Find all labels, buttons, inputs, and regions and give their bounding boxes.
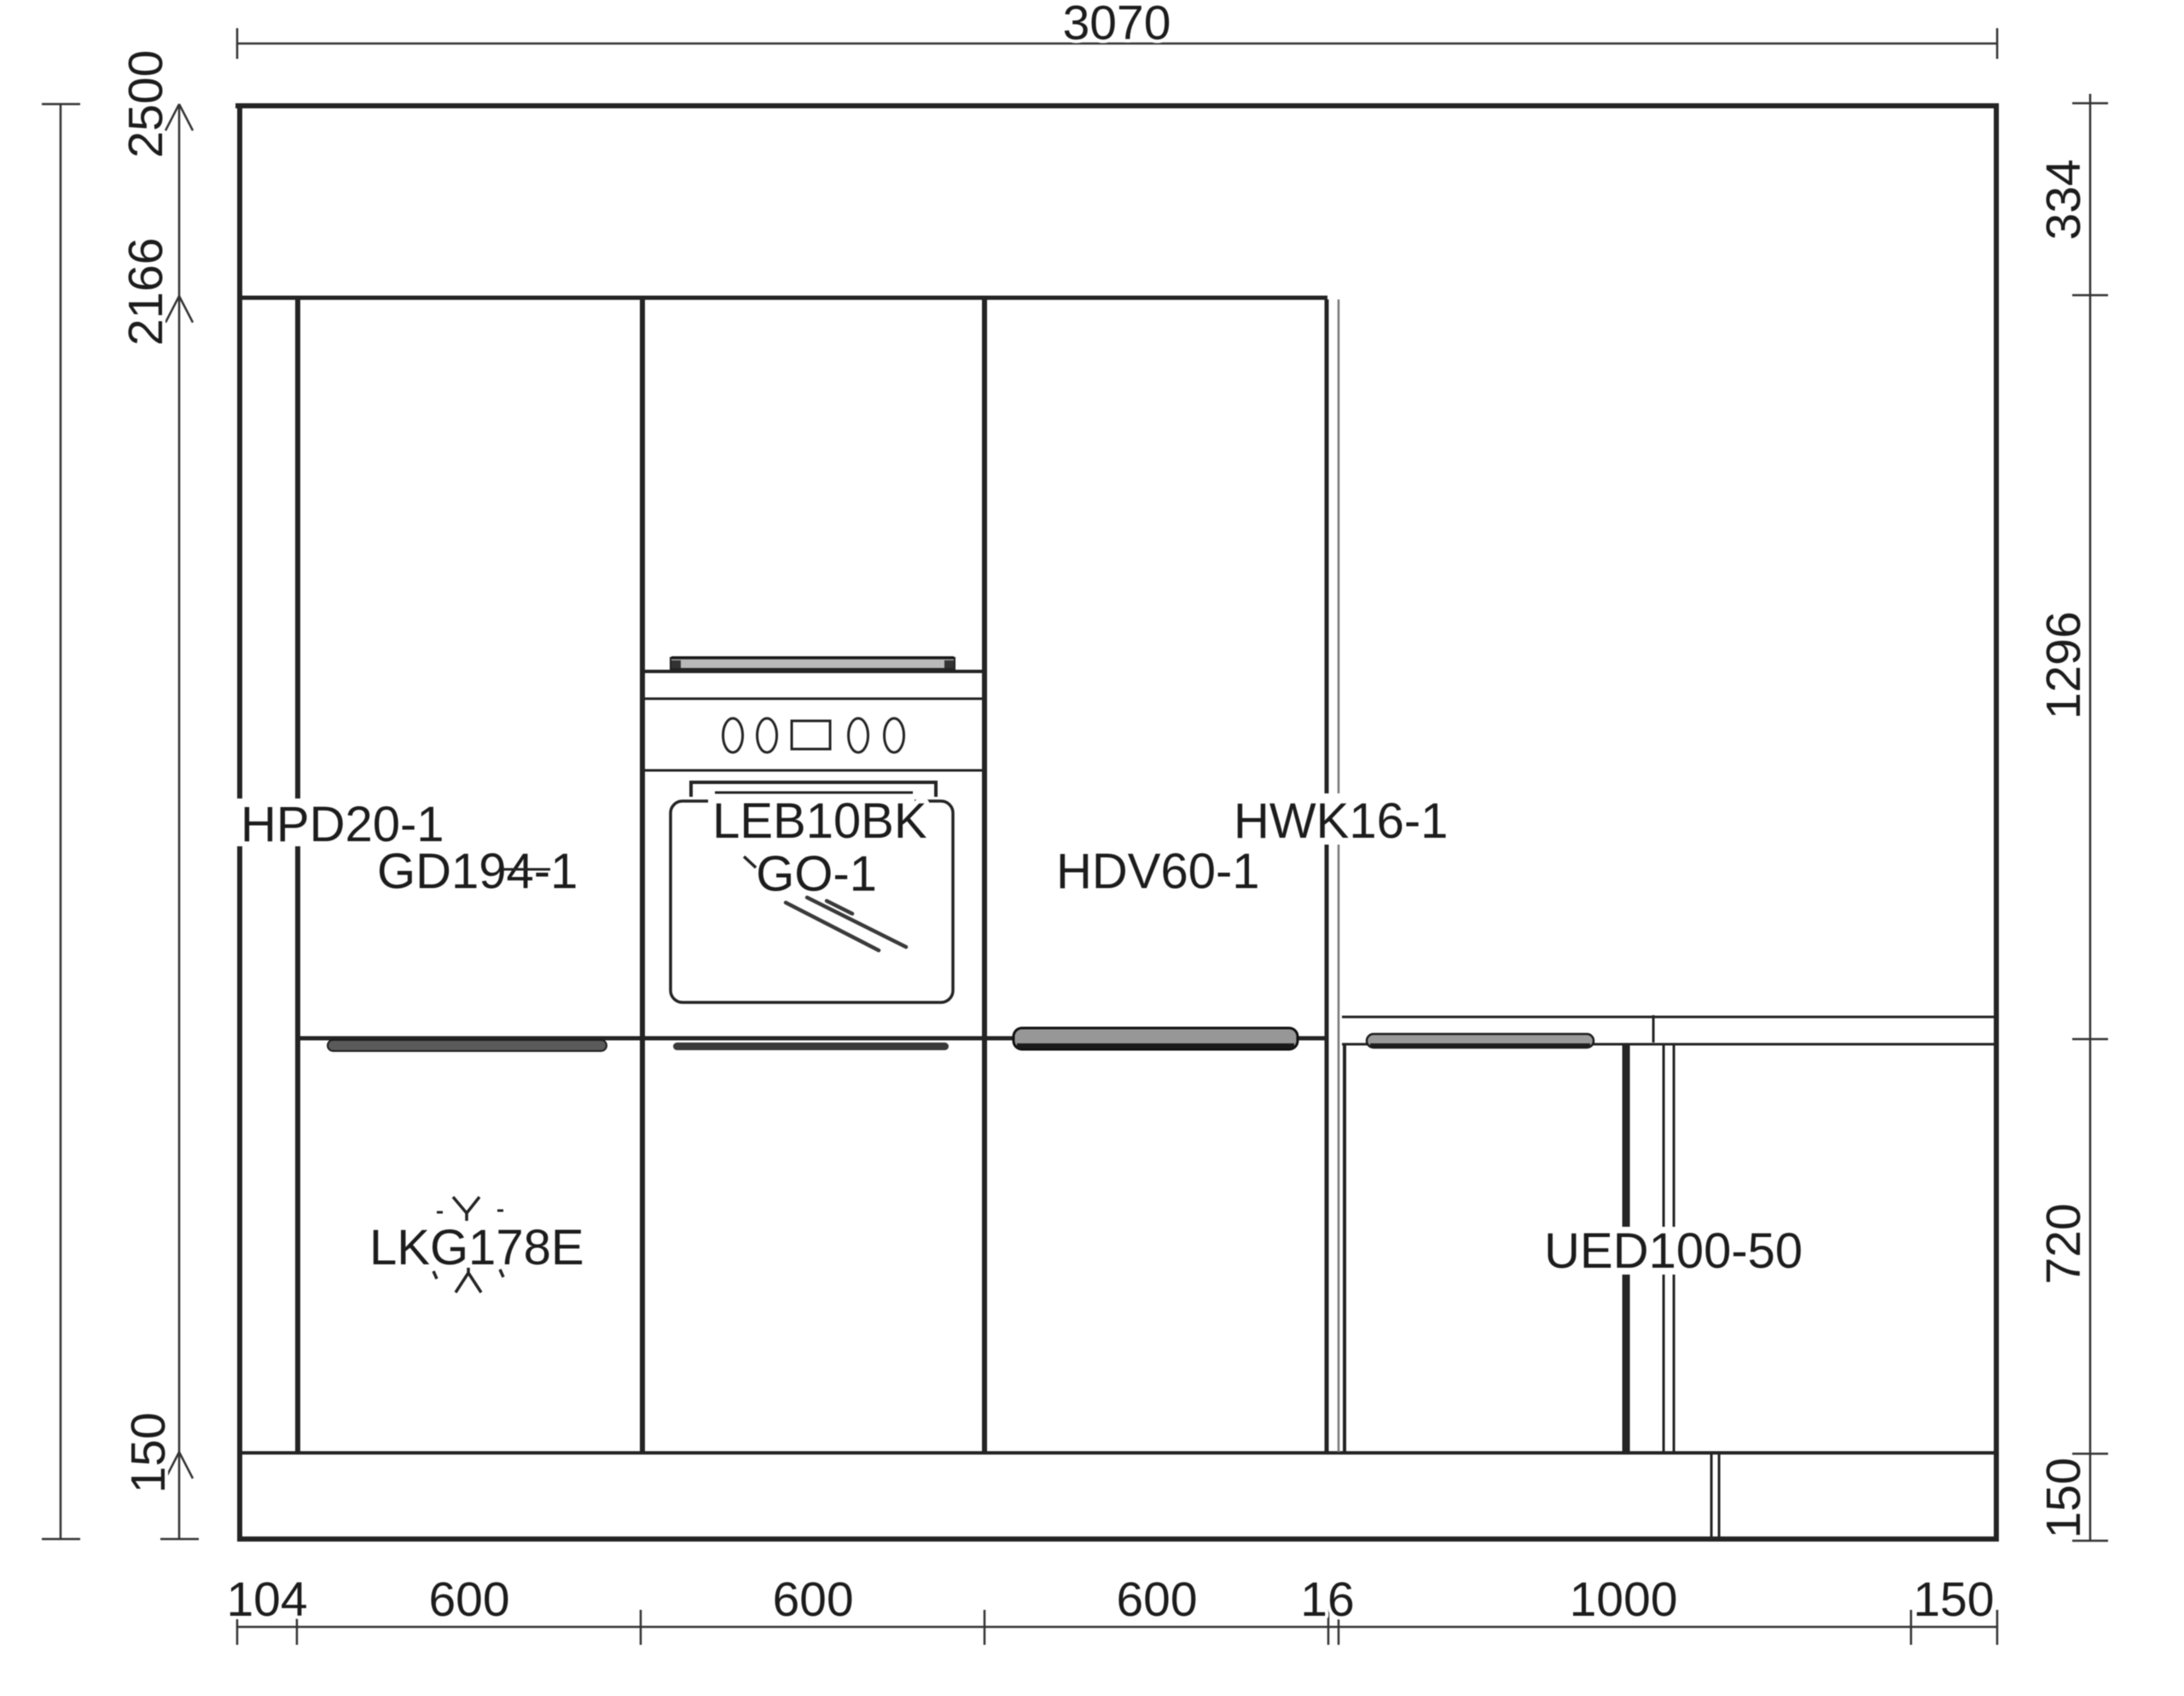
- svg-text:HWK16-1: HWK16-1: [1234, 793, 1448, 849]
- svg-text:150: 150: [2036, 1457, 2091, 1538]
- svg-text:16: 16: [1300, 1572, 1354, 1627]
- svg-text:600: 600: [428, 1572, 509, 1627]
- svg-text:104: 104: [226, 1572, 307, 1627]
- svg-text:1296: 1296: [2036, 612, 2091, 720]
- svg-text:334: 334: [2036, 159, 2091, 240]
- svg-text:150: 150: [1913, 1572, 1994, 1627]
- svg-text:2166: 2166: [119, 238, 173, 346]
- svg-text:GO-1: GO-1: [756, 846, 877, 902]
- svg-text:1000: 1000: [1570, 1572, 1678, 1627]
- svg-text:150: 150: [121, 1412, 176, 1493]
- svg-text:GD194-1: GD194-1: [377, 844, 578, 899]
- svg-text:720: 720: [2036, 1203, 2091, 1284]
- svg-text:2500: 2500: [119, 50, 173, 159]
- svg-text:LKG178E: LKG178E: [369, 1220, 584, 1275]
- svg-text:HDV60-1: HDV60-1: [1056, 844, 1260, 899]
- svg-text:LEB10BK: LEB10BK: [712, 793, 927, 849]
- svg-text:600: 600: [1116, 1572, 1197, 1627]
- svg-text:UED100-50: UED100-50: [1544, 1223, 1803, 1279]
- svg-text:3070: 3070: [1063, 0, 1171, 50]
- svg-text:600: 600: [772, 1572, 853, 1627]
